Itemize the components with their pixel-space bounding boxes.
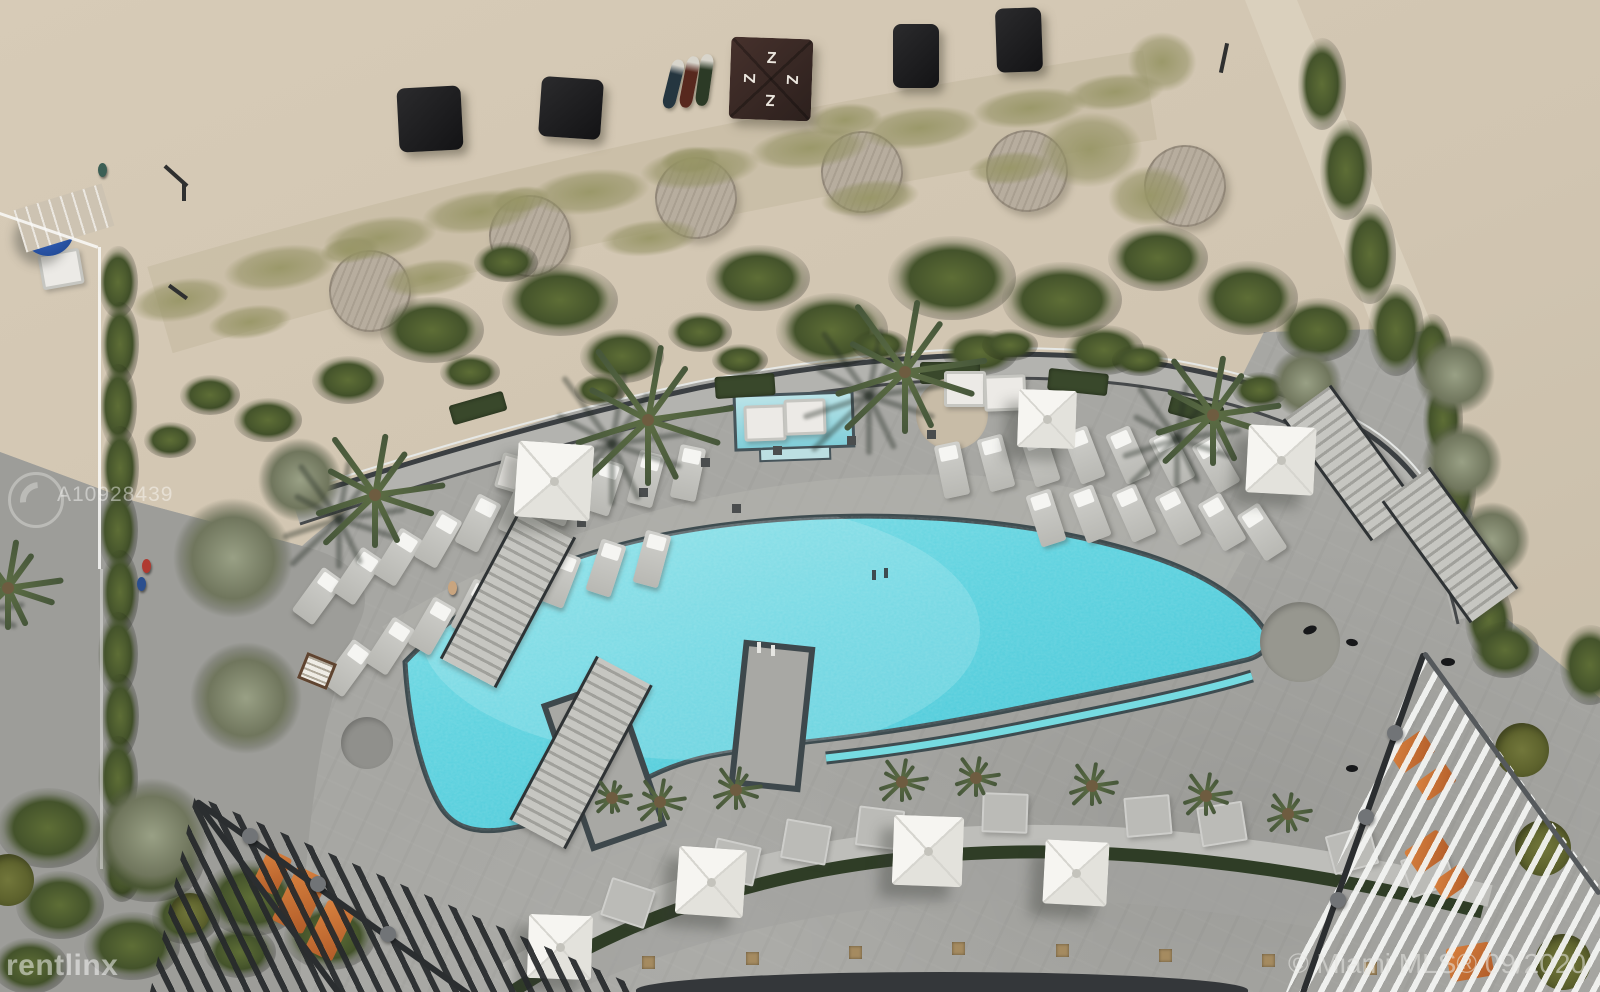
- pergola-joint: [380, 926, 396, 942]
- roof-edge-band: [636, 972, 1248, 992]
- watermark-provider: rentlinx: [6, 951, 118, 981]
- pergola-joint: [1387, 725, 1403, 741]
- watermark-listing-id: A10928439: [57, 484, 173, 505]
- beach-access-ramp: [14, 184, 115, 253]
- structures-layer: A10928439 rentlinx © Miami MLS® 09/2020: [0, 0, 1600, 992]
- fence-line: [100, 569, 103, 869]
- pergola-joint: [1358, 809, 1374, 825]
- white-pergola: [1286, 642, 1600, 992]
- dark-pergola: [150, 778, 650, 992]
- fence-line: [98, 247, 101, 569]
- pergola-joint: [242, 828, 258, 844]
- aerial-photo-pool-deck: ZZZZ A10928439 rentlinx © Miami MLS® 09/…: [0, 0, 1600, 992]
- watermark-logo-icon: [8, 472, 64, 528]
- watermark-mls-credit: © Miami MLS® 09/2020: [1288, 950, 1586, 978]
- pergola-joint: [1330, 892, 1346, 908]
- pergola-joint: [310, 876, 326, 892]
